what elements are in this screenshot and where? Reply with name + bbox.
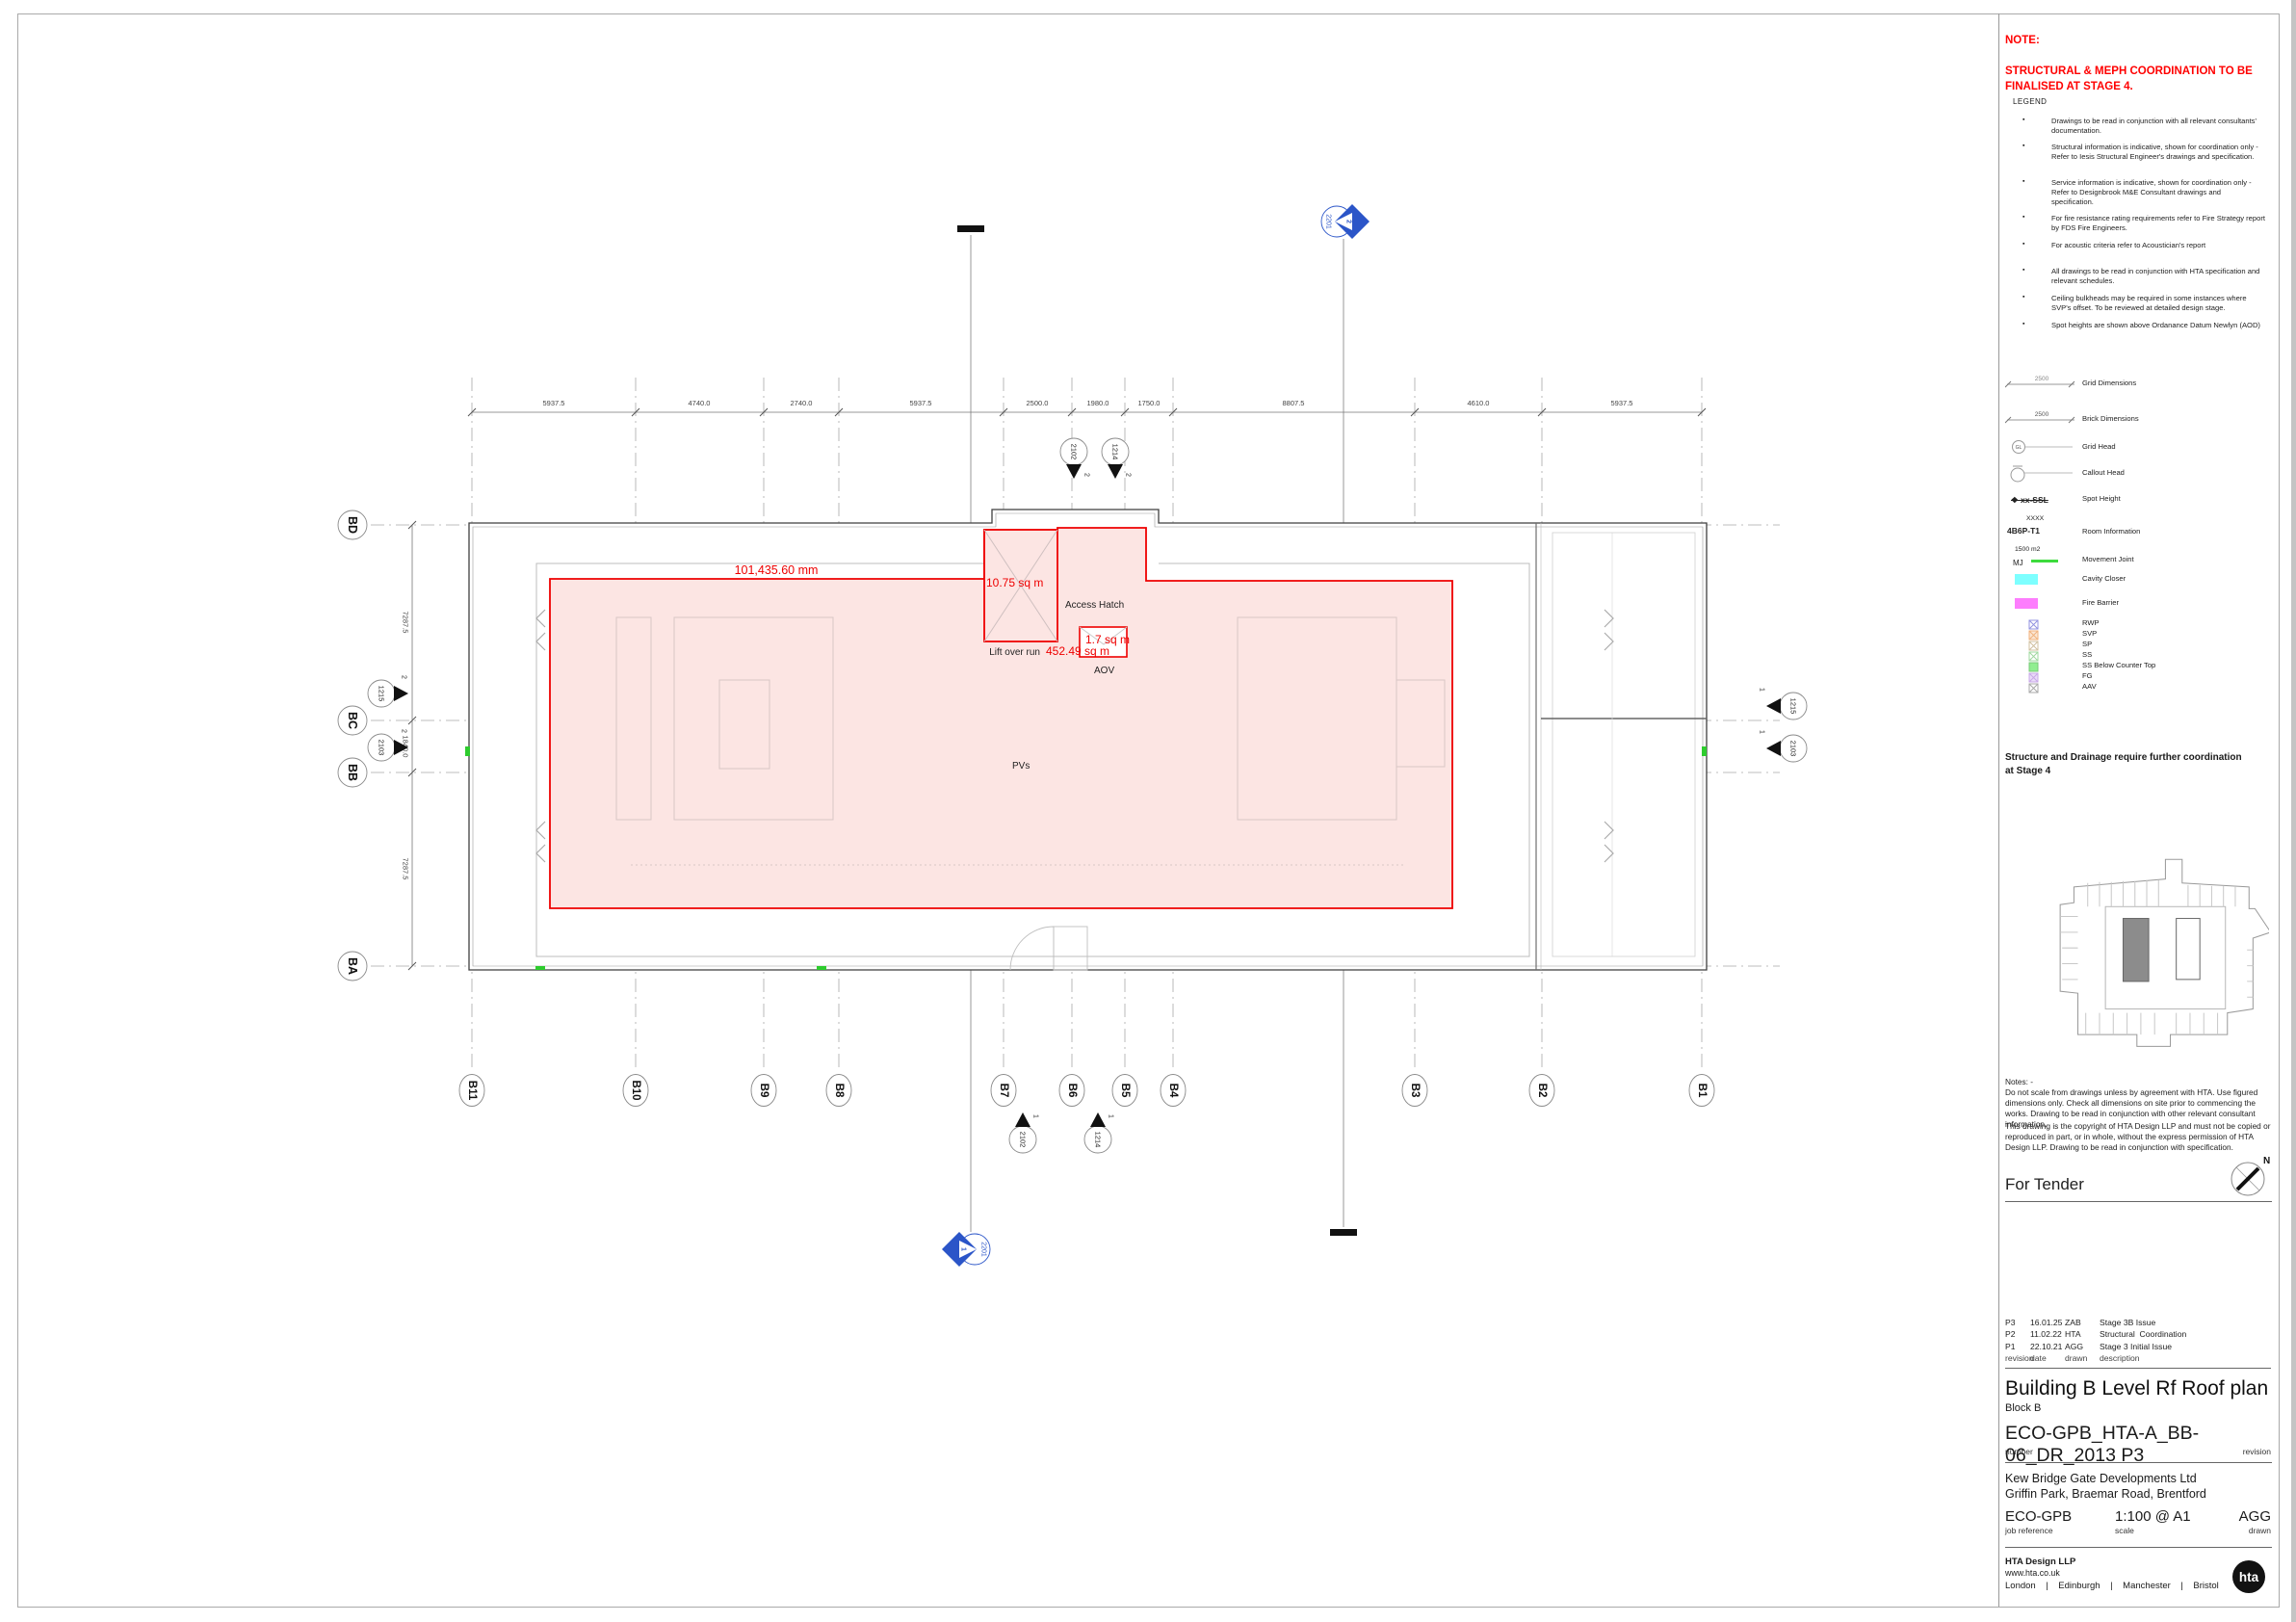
legend-note-4: For fire resistance rating requirements … — [2051, 214, 2265, 233]
revision-row: P3 16.01.25 ZAB Stage 3B Issue — [2005, 1317, 2271, 1328]
hta-logo: hta — [2232, 1560, 2265, 1593]
room-information-icon: 4B6P-T1 1500 m2 — [2007, 521, 2040, 556]
section-2201-bottom-id: 2201 — [980, 1242, 987, 1257]
elevation-markers-bottom: 2102 1 1214 1 — [1009, 1112, 1114, 1153]
dim-top-5: 2500.0 — [1027, 399, 1049, 407]
grid-bubbles-bottom — [459, 1075, 1714, 1107]
status-for-tender: For Tender — [2005, 1175, 2084, 1194]
callout-head-icon — [2005, 463, 2078, 487]
spot-height-icon: ❖ xx-SSL XXXX — [2011, 490, 2048, 525]
marker-2102-bottom-id: 2102 — [1019, 1132, 1028, 1148]
dim-left-1: 7287.5 — [402, 612, 410, 634]
elevation-markers-left: 1215 2 2103 2 — [368, 675, 408, 761]
grid-label-b9: B9 — [758, 1084, 770, 1098]
marker-2103-left-num: 2 — [401, 729, 407, 733]
marker-1214-bottom-arrow — [1090, 1112, 1106, 1127]
rev-date: 11.02.22 — [2030, 1328, 2065, 1340]
dim-top-2: 4740.0 — [689, 399, 711, 407]
drawing-number: ECO-GPB_HTA-A_BB-06_DR_2013 P3 — [2005, 1423, 2296, 1467]
marker-2103-left-id: 2103 — [378, 740, 386, 756]
revision-label: revision — [2198, 1447, 2271, 1456]
key-plan — [2022, 848, 2269, 1077]
grid-label-b8: B8 — [833, 1084, 845, 1098]
key-plan-block-b-highlight — [2124, 919, 2150, 981]
legend-label: AAV — [2082, 682, 2097, 691]
brick-dim-value: 2500 — [2035, 411, 2049, 418]
rev-drawn: HTA — [2065, 1328, 2100, 1340]
marker-1215-left-arrow — [394, 686, 408, 701]
drawing-subtitle: Block B — [2005, 1402, 2041, 1414]
divider-rule — [2005, 1462, 2272, 1463]
marker-1214-bottom-id: 1214 — [1094, 1132, 1103, 1148]
legend-label: Grid Dimensions — [2082, 379, 2136, 387]
job-reference-label: job reference — [2005, 1526, 2053, 1535]
legend-note-3: Service information is indicative, shown… — [2051, 178, 2265, 207]
legend-label: SP — [2082, 640, 2092, 648]
bullet-icon: ▪ — [2022, 241, 2024, 248]
grid-label-b11: B11 — [466, 1081, 478, 1101]
legend-row-room-information: 4B6P-T1 1500 m2 Room Information — [2005, 521, 2271, 538]
legend-label: Spot Height — [2082, 494, 2121, 503]
grid-bubbles-left — [338, 510, 367, 981]
grid-label-bb: BB — [346, 764, 359, 781]
room-info-value: 4B6P-T1 — [2007, 526, 2040, 536]
north-arrow: N — [2223, 1152, 2277, 1202]
marker-2103-right-id: 2103 — [1789, 741, 1798, 757]
elevation-markers-top: 2102 2 1214 2 — [1060, 438, 1132, 479]
firm-website: www.hta.co.uk — [2005, 1568, 2060, 1578]
dim-top-10: 5937.5 — [1611, 399, 1633, 407]
firm-offices: London | Edinburgh | Manchester | Bristo… — [2005, 1581, 2219, 1591]
marker-1215-left-id: 1215 — [378, 686, 386, 702]
pvs-label: PVs — [1012, 761, 1030, 772]
grid-label-bd: BD — [346, 516, 359, 534]
section-2201-top-num: 2 — [1345, 220, 1352, 223]
marker-1214-bottom-num: 1 — [1108, 1114, 1114, 1118]
marker-2102-bottom-arrow — [1015, 1112, 1031, 1127]
rev-id: P1 — [2005, 1341, 2030, 1352]
grid-head-value: GL — [2016, 445, 2022, 451]
marker-1215-left-num: 2 — [401, 675, 407, 679]
rev-date: 22.10.21 — [2030, 1341, 2065, 1352]
top-dimension-line: 5937.5 4740.0 2740.0 5937.5 2500.0 1980.… — [468, 399, 1706, 416]
legend-label: SS — [2082, 650, 2092, 659]
marker-1214-top-num: 2 — [1125, 473, 1132, 477]
bullet-icon: ▪ — [2022, 321, 2024, 327]
legend-label: Callout Head — [2082, 468, 2125, 477]
grid-label-b10: B10 — [630, 1080, 641, 1100]
dim-top-9: 4610.0 — [1468, 399, 1490, 407]
rev-description: Stage 3B Issue — [2100, 1317, 2271, 1328]
key-plan-block-outline — [2177, 919, 2201, 980]
legend-note-8: Spot heights are shown above Ordanance D… — [2051, 321, 2265, 330]
room-info-sub: 1500 m2 — [2015, 546, 2040, 553]
drawn-value: AGG — [2198, 1508, 2271, 1525]
legend-row-callout-head: Callout Head — [2005, 463, 2271, 481]
note-title: NOTE: — [2005, 35, 2040, 46]
grid-bubble-labels-bottom: B11 B10 B9 B8 B7 B6 B5 B4 B3 B2 B1 — [466, 1080, 1708, 1100]
legend-row-aav: AAV — [2005, 681, 2271, 693]
grid-head-icon: GL — [2005, 439, 2078, 459]
legend-row-spot-height: ❖ xx-SSL XXXX Spot Height — [2005, 490, 2271, 508]
lift-over-run-label: Lift over run — [989, 647, 1040, 658]
revision-row: P2 11.02.22 HTA Structural Coordination — [2005, 1328, 2271, 1340]
brick-dimension-icon: 2500 — [2005, 409, 2078, 430]
legend-note-5: For acoustic criteria refer to Acoustici… — [2051, 241, 2265, 250]
dim-top-6: 1980.0 — [1087, 399, 1109, 407]
legend-label: SVP — [2082, 629, 2097, 638]
rev-description: Structural Coordination — [2100, 1328, 2271, 1340]
marker-2103-right-num: 1 — [1759, 730, 1765, 734]
revision-row: P1 22.10.21 AGG Stage 3 Initial Issue — [2005, 1341, 2271, 1352]
legend-title: LEGEND — [2013, 97, 2047, 106]
legend-note-2: Structural information is indicative, sh… — [2051, 143, 2265, 162]
legend-label: Fire Barrier — [2082, 598, 2119, 607]
rev-header: description — [2100, 1352, 2271, 1364]
marker-2102-top-num: 2 — [1083, 473, 1090, 477]
drawing-sheet: 5937.5 4740.0 2740.0 5937.5 2500.0 1980.… — [0, 0, 2296, 1622]
legend-note-6: All drawings to be read in conjunction w… — [2051, 267, 2265, 286]
divider-rule — [2005, 1547, 2272, 1548]
legend-label: Grid Head — [2082, 442, 2116, 451]
grid-label-b6: B6 — [1066, 1084, 1078, 1098]
grid-label-b5: B5 — [1119, 1084, 1131, 1098]
revision-table: P3 16.01.25 ZAB Stage 3B Issue P2 11.02.… — [2005, 1317, 2271, 1369]
legend-label: RWP — [2082, 618, 2100, 627]
grid-bubble-labels-left: BD BC BB BA — [346, 516, 359, 975]
marker-1214-top-arrow — [1108, 464, 1123, 479]
section-marker-2201-top: 2201 2 — [1321, 204, 1370, 239]
grid-label-bc: BC — [346, 712, 359, 729]
bullet-icon: ▪ — [2022, 294, 2024, 301]
rev-id: P3 — [2005, 1317, 2030, 1328]
legend-label: FG — [2082, 671, 2093, 680]
legend-note-1: Drawings to be read in conjunction with … — [2051, 117, 2265, 136]
grid-dimension-icon: 2500 — [2005, 374, 2078, 394]
firm-name: HTA Design LLP — [2005, 1557, 2075, 1567]
drawing-title: Building B Level Rf Roof plan — [2005, 1377, 2268, 1400]
section-2201-bottom-num: 1 — [960, 1247, 967, 1251]
movement-joint-icon: MJ — [2013, 553, 2058, 570]
dim-top-1: 5937.5 — [543, 399, 565, 407]
rev-header: drawn — [2065, 1352, 2100, 1364]
north-label: N — [2263, 1156, 2270, 1166]
coordination-note: NOTE: STRUCTURAL & MEPH COORDINATION TO … — [2005, 17, 2275, 94]
marker-2102-top-id: 2102 — [1070, 444, 1079, 460]
marker-1215-right-num: 1 — [1759, 688, 1765, 692]
dim-top-3: 2740.0 — [791, 399, 813, 407]
number-label: number — [2005, 1447, 2033, 1456]
marker-2102-top-arrow — [1066, 464, 1082, 479]
dim-top-4: 5937.5 — [910, 399, 932, 407]
rev-header: date — [2030, 1352, 2065, 1364]
bullet-icon: ▪ — [2022, 214, 2024, 221]
dim-top-8: 8807.5 — [1283, 399, 1305, 407]
aov-area-annotation: 1.7 sq m — [1085, 633, 1130, 646]
legend-label: Brick Dimensions — [2082, 414, 2139, 423]
marker-2102-bottom-num: 1 — [1032, 1114, 1039, 1118]
revision-header-row: revision date drawn description — [2005, 1352, 2271, 1364]
scale-value: 1:100 @ A1 — [2115, 1508, 2191, 1525]
legend-row-cavity-closer: Cavity Closer — [2005, 572, 2271, 589]
rev-date: 16.01.25 — [2030, 1317, 2065, 1328]
marker-1215-right-arrow — [1766, 698, 1781, 714]
aov-label: AOV — [1094, 666, 1114, 676]
client-name: Kew Bridge Gate Developments Ltd Griffin… — [2005, 1472, 2206, 1502]
rev-drawn: ZAB — [2065, 1317, 2100, 1328]
lift-area-annotation: 10.75 sq m — [986, 576, 1043, 589]
section-bar-bottom — [1330, 1229, 1357, 1236]
job-reference-value: ECO-GPB — [2005, 1508, 2072, 1525]
rev-header: revision — [2005, 1352, 2030, 1364]
grid-label-b7: B7 — [998, 1084, 1009, 1098]
dim-top-7: 1750.0 — [1138, 399, 1161, 407]
structure-coordination-note: Structure and Drainage require further c… — [2005, 751, 2265, 777]
grid-dim-value: 2500 — [2035, 376, 2049, 382]
grid-label-b4: B4 — [1167, 1084, 1179, 1098]
legend-row-fire-barrier: Fire Barrier — [2005, 596, 2271, 614]
pv-area-annotation: 452.49 sq m — [1046, 644, 1109, 658]
cavity-closer-swatch — [2015, 572, 2038, 589]
fire-barrier-swatch — [2015, 596, 2038, 614]
scale-label: scale — [2115, 1526, 2134, 1535]
marker-1214-top-id: 1214 — [1111, 444, 1120, 460]
grid-label-b3: B3 — [1409, 1084, 1421, 1098]
legend-row-movement-joint: MJ Movement Joint — [2005, 553, 2271, 570]
roof-length-annotation: 101,435.60 mm — [735, 563, 819, 577]
note-body: STRUCTURAL & MEPH COORDINATION TO BE FIN… — [2005, 65, 2253, 92]
legend-row-grid-head: GL Grid Head — [2005, 439, 2271, 457]
bullet-icon: ▪ — [2022, 178, 2024, 185]
legend-label: Cavity Closer — [2082, 574, 2126, 583]
legend-label: Room Information — [2082, 527, 2140, 536]
copyright-note: This drawing is the copyright of HTA Des… — [2005, 1121, 2273, 1153]
section-marker-2201-bottom: 2201 1 — [942, 1232, 990, 1267]
dim-left-3: 7287.5 — [402, 858, 410, 880]
legend-label: SS Below Counter Top — [2082, 661, 2155, 669]
marker-1215-right-id: 1215 — [1789, 698, 1798, 715]
aav-icon — [2028, 681, 2039, 698]
section-2201-top-id: 2201 — [1325, 214, 1332, 229]
drawn-label: drawn — [2198, 1526, 2271, 1535]
legend-row-brick-dimensions: 2500 Brick Dimensions — [2005, 409, 2271, 427]
spot-height-value: xx-SSL — [2021, 495, 2048, 505]
section-bar-top — [957, 225, 984, 232]
access-hatch-label: Access Hatch — [1065, 600, 1124, 611]
grid-label-ba: BA — [346, 957, 359, 975]
elevation-markers-right: 1215 1 2103 1 — [1759, 688, 1808, 762]
bullet-icon: ▪ — [2022, 267, 2024, 274]
grid-label-b2: B2 — [1536, 1084, 1548, 1098]
roof-plan-canvas: 5937.5 4740.0 2740.0 5937.5 2500.0 1980.… — [0, 0, 2296, 1622]
rev-id: P2 — [2005, 1328, 2030, 1340]
bullet-icon: ▪ — [2022, 117, 2024, 123]
legend-row-grid-dimensions: 2500 Grid Dimensions — [2005, 374, 2271, 391]
legend-note-7: Ceiling bulkheads may be required in som… — [2051, 294, 2265, 313]
rev-drawn: AGG — [2065, 1341, 2100, 1352]
mj-value: MJ — [2013, 559, 2023, 567]
rev-description: Stage 3 Initial Issue — [2100, 1341, 2271, 1352]
legend-label: Movement Joint — [2082, 555, 2134, 563]
grid-label-b1: B1 — [1696, 1084, 1708, 1098]
bullet-icon: ▪ — [2022, 143, 2024, 149]
marker-2103-right-arrow — [1766, 741, 1781, 756]
